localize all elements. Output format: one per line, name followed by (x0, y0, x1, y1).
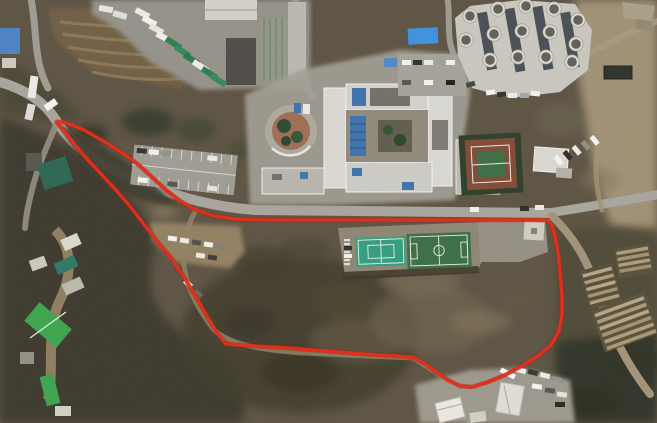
parked-car (413, 60, 422, 65)
parked-car (531, 91, 540, 97)
parked-car (520, 206, 529, 211)
parked-car (435, 60, 444, 65)
futsal-court (356, 236, 407, 267)
tank (539, 50, 553, 64)
screenshot-root (0, 0, 657, 423)
parked-car (160, 150, 170, 156)
parked-car (137, 177, 147, 183)
plaza-garden (272, 112, 310, 150)
tank (491, 2, 505, 16)
parked-car (402, 80, 411, 85)
pad-structure-detail (531, 228, 537, 234)
stall-mark (344, 239, 350, 241)
parked-car (535, 205, 544, 210)
parked-car (344, 254, 352, 258)
dark-container (604, 66, 632, 79)
tank (519, 0, 533, 13)
stall-mark (344, 251, 350, 253)
tank (565, 55, 579, 69)
parked-car (508, 93, 517, 98)
parked-car (424, 80, 433, 85)
tree (281, 136, 291, 146)
tree (394, 134, 406, 146)
parked-car (424, 60, 433, 65)
tennis-court (458, 132, 523, 195)
parked-car (446, 60, 455, 65)
solar-panel (402, 182, 414, 190)
roof-vent (272, 174, 282, 180)
stall-mark (344, 259, 350, 261)
blue-roof-shed-small (384, 58, 397, 67)
west-wing (324, 88, 346, 188)
blue-roof-shed (408, 27, 439, 45)
south-wing (346, 162, 432, 192)
small-shed (2, 58, 16, 68)
parked-car (167, 181, 177, 187)
southwest-annex (262, 168, 324, 194)
tank (547, 2, 561, 16)
long-building-gray (288, 2, 306, 80)
gray-shed (20, 352, 34, 364)
east-wing-dark-roof (432, 120, 448, 150)
parked-car (520, 93, 529, 98)
tank (515, 24, 529, 38)
parked-car (207, 155, 217, 161)
parked-car (470, 207, 479, 212)
tank (569, 37, 583, 51)
parked-car (344, 246, 352, 250)
parked-truck (555, 402, 565, 407)
solar-panel (300, 172, 308, 179)
white-roof-building (496, 382, 525, 416)
tree (277, 119, 291, 133)
tree (291, 131, 303, 143)
tank (463, 9, 477, 23)
courtyard-garden (378, 120, 412, 152)
dark-roof-building (226, 38, 256, 85)
gravel-pad-east (478, 218, 548, 262)
parked-car (446, 80, 455, 85)
tank (543, 25, 557, 39)
parked-car (148, 149, 158, 155)
parked-car (303, 104, 310, 114)
parked-car (402, 60, 411, 65)
parked-car (207, 185, 217, 191)
white-shed (55, 406, 71, 416)
parked-car (294, 103, 301, 113)
tank (487, 27, 501, 41)
tank (483, 53, 497, 67)
satellite-map[interactable] (0, 0, 657, 423)
tank (511, 50, 525, 64)
tree (383, 125, 393, 135)
northeast-parking (398, 54, 466, 96)
courtyard-solar-array (350, 116, 366, 156)
terrace-cluster (614, 243, 655, 279)
parked-car (497, 91, 506, 97)
blue-roof-shed (0, 28, 20, 54)
stall-mark (344, 243, 350, 245)
soccer-field (406, 232, 471, 269)
tank (459, 33, 473, 47)
stall-mark (344, 263, 350, 265)
parked-car (137, 148, 147, 154)
solar-panel (352, 88, 366, 106)
tank (571, 13, 585, 27)
annex-shed (556, 167, 573, 178)
solar-panel (352, 168, 362, 176)
